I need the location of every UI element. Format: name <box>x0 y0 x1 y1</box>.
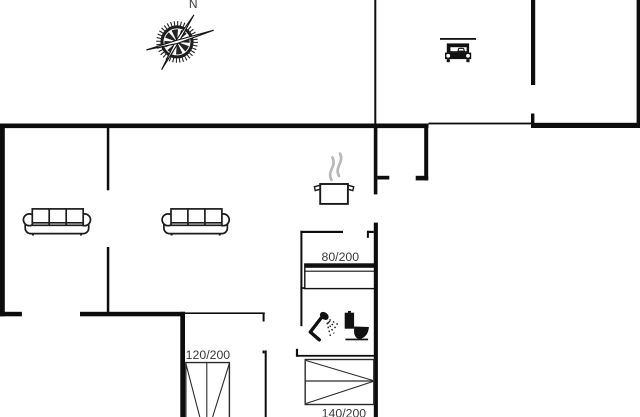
svg-text:140/200: 140/200 <box>322 406 367 417</box>
svg-text:N: N <box>189 0 198 11</box>
svg-text:120/200: 120/200 <box>186 348 231 362</box>
svg-text:80/200: 80/200 <box>321 250 359 264</box>
